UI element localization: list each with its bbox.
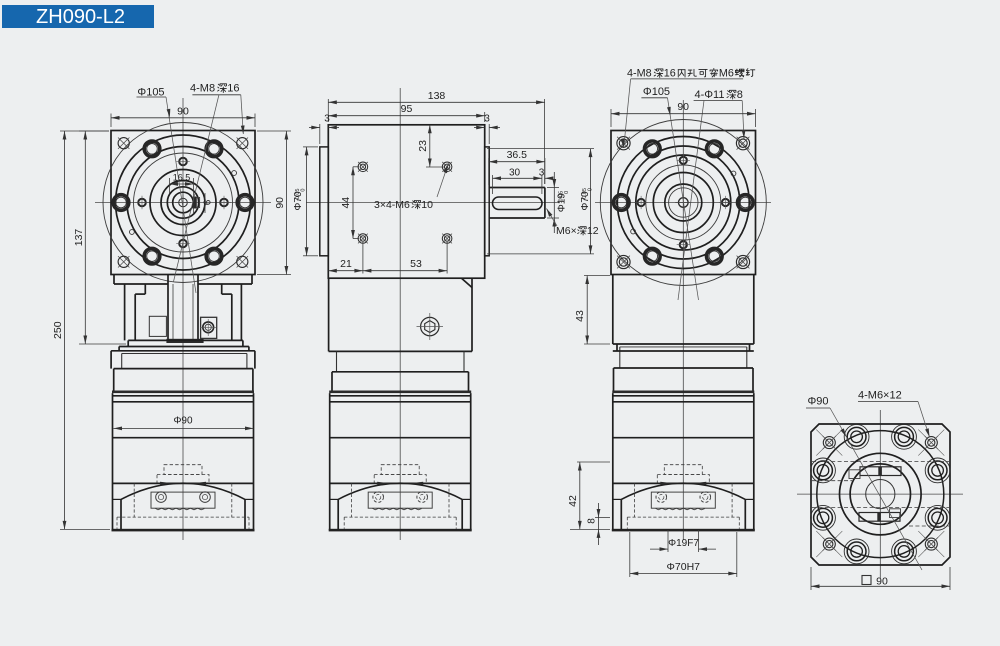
svg-text:ZH090-L2: ZH090-L2 — [36, 6, 125, 28]
svg-text:36.5: 36.5 — [507, 149, 528, 161]
svg-text:90: 90 — [677, 101, 689, 113]
svg-text:8: 8 — [737, 89, 743, 101]
svg-text:3: 3 — [539, 167, 545, 178]
svg-text:0: 0 — [564, 191, 570, 194]
svg-text:95: 95 — [401, 103, 413, 115]
svg-text:16: 16 — [227, 83, 239, 95]
svg-text:21: 21 — [340, 258, 352, 270]
svg-text:Φ105: Φ105 — [643, 86, 670, 98]
svg-text:16.5: 16.5 — [173, 173, 191, 183]
svg-text:138: 138 — [428, 90, 446, 102]
svg-text:0: 0 — [587, 188, 593, 191]
svg-text:Φ19F7: Φ19F7 — [668, 538, 699, 549]
svg-text:90: 90 — [177, 105, 189, 117]
svg-text:16: 16 — [664, 68, 676, 80]
svg-text:-0.05: -0.05 — [295, 189, 301, 202]
svg-text:6: 6 — [202, 199, 213, 205]
svg-text:3: 3 — [324, 114, 330, 125]
svg-text:8: 8 — [586, 518, 597, 524]
svg-text:-0.05: -0.05 — [559, 191, 565, 204]
svg-text:90: 90 — [274, 197, 286, 209]
svg-text:Φ90: Φ90 — [807, 396, 828, 408]
svg-text:4-M8: 4-M8 — [190, 83, 215, 95]
svg-text:90: 90 — [876, 576, 888, 588]
svg-text:44: 44 — [340, 197, 352, 209]
svg-text:3: 3 — [484, 114, 490, 125]
svg-text:4-Φ11: 4-Φ11 — [695, 89, 725, 101]
svg-text:42: 42 — [567, 495, 579, 507]
svg-text:M6: M6 — [719, 68, 734, 80]
svg-text:23: 23 — [417, 140, 429, 152]
svg-text:12: 12 — [587, 225, 599, 237]
svg-text:3×4-M6: 3×4-M6 — [374, 199, 410, 211]
svg-text:250: 250 — [52, 321, 64, 339]
svg-text:M6×: M6× — [556, 225, 577, 237]
svg-text:53: 53 — [410, 258, 422, 270]
svg-text:-0.05: -0.05 — [582, 188, 588, 201]
svg-text:4-M6×12: 4-M6×12 — [858, 390, 902, 402]
svg-text:4-M8: 4-M8 — [627, 68, 652, 80]
svg-text:137: 137 — [73, 229, 85, 247]
svg-text:10: 10 — [421, 199, 433, 211]
svg-text:30: 30 — [509, 167, 521, 178]
svg-text:0: 0 — [300, 189, 306, 192]
svg-text:43: 43 — [574, 310, 586, 322]
svg-text:Φ90: Φ90 — [173, 416, 193, 427]
svg-text:Φ70H7: Φ70H7 — [667, 561, 701, 573]
